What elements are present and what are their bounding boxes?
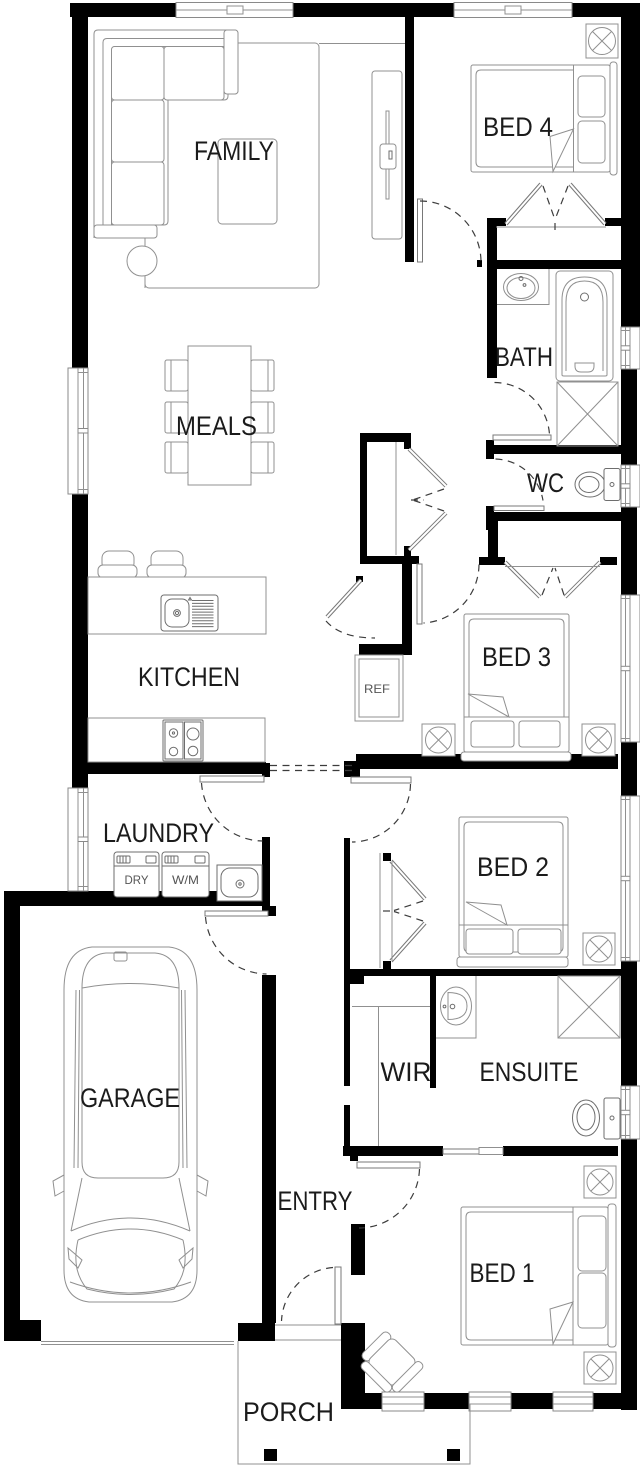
svg-text:GARAGE: GARAGE xyxy=(80,1083,180,1113)
svg-text:DRY: DRY xyxy=(125,873,149,887)
svg-text:REF: REF xyxy=(364,682,390,696)
svg-text:BED 1: BED 1 xyxy=(470,1258,535,1288)
svg-text:BATH: BATH xyxy=(495,342,553,372)
svg-text:WIR: WIR xyxy=(381,1057,432,1087)
svg-text:BED 2: BED 2 xyxy=(477,852,549,882)
svg-text:BED 3: BED 3 xyxy=(482,642,551,672)
svg-text:WC: WC xyxy=(527,468,564,498)
svg-text:ENSUITE: ENSUITE xyxy=(480,1057,579,1087)
svg-text:LAUNDRY: LAUNDRY xyxy=(103,818,214,848)
svg-text:KITCHEN: KITCHEN xyxy=(138,662,240,692)
svg-text:FAMILY: FAMILY xyxy=(194,136,274,166)
svg-text:W/M: W/M xyxy=(172,873,199,887)
svg-text:BED 4: BED 4 xyxy=(483,112,553,142)
svg-text:ENTRY: ENTRY xyxy=(278,1186,353,1216)
svg-text:MEALS: MEALS xyxy=(176,411,257,441)
svg-text:PORCH: PORCH xyxy=(243,1397,334,1427)
